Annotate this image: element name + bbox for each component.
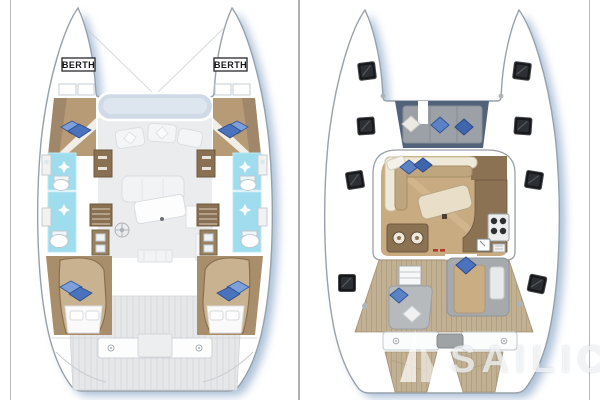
deck-hatch-icon — [513, 62, 532, 81]
deck-hatch-icon — [339, 275, 356, 292]
cockpit-steps-icon — [399, 266, 421, 285]
deck-hatch-icon — [514, 117, 532, 135]
sunpad-icon — [447, 257, 509, 316]
deck-hatch-icon — [524, 170, 543, 189]
foredeck-walkway — [418, 101, 428, 124]
chart-table-icon — [387, 224, 428, 252]
stove-icon — [488, 214, 509, 241]
helm-wheel-icon — [115, 223, 129, 237]
cockpit-bench-icon — [383, 332, 439, 350]
floorplan-canvas: BERTH BERTH — [0, 0, 600, 400]
red-mark — [440, 249, 445, 252]
deck-hatch-icon — [358, 62, 377, 81]
deck-hatch-icon — [527, 274, 547, 294]
cleat-icon — [362, 303, 368, 309]
windshield — [97, 93, 213, 120]
salon — [373, 150, 515, 262]
berth-label-port-text: BERTH — [62, 60, 95, 70]
cockpit-bench-icon — [461, 332, 517, 350]
cleat-icon — [517, 301, 523, 307]
berth-label-starboard-text: BERTH — [214, 60, 247, 70]
main-deck-plan-image — [299, 0, 590, 400]
engine-hatch-icon — [437, 334, 463, 348]
deck-hatch-icon — [345, 170, 364, 189]
cockpit-seat-icon — [389, 286, 432, 329]
deck-hatch-icon — [357, 117, 375, 135]
salon-ghost-area — [98, 118, 212, 262]
lower-deck-plan-image: BERTH BERTH — [10, 0, 299, 400]
berth-label-starboard: BERTH — [214, 58, 247, 71]
red-mark — [433, 249, 438, 252]
berth-label-port: BERTH — [62, 58, 95, 71]
